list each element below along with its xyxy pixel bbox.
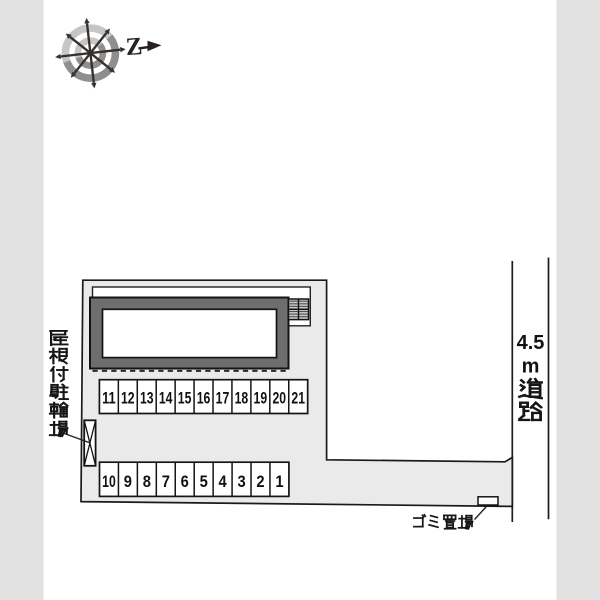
svg-text:18: 18 (235, 388, 249, 407)
svg-text:8: 8 (143, 472, 151, 491)
svg-text:17: 17 (216, 388, 230, 407)
svg-text:7: 7 (162, 472, 170, 491)
svg-text:11: 11 (102, 388, 116, 407)
svg-text:12: 12 (121, 388, 135, 407)
svg-text:4: 4 (219, 472, 228, 491)
svg-text:3: 3 (237, 472, 245, 491)
svg-text:19: 19 (254, 388, 268, 407)
svg-text:14: 14 (159, 388, 173, 407)
svg-text:1: 1 (275, 472, 283, 491)
svg-text:6: 6 (181, 472, 189, 491)
svg-text:5: 5 (200, 472, 208, 491)
svg-text:13: 13 (140, 388, 154, 407)
svg-text:20: 20 (272, 388, 286, 407)
svg-text:m: m (522, 356, 540, 378)
svg-text:15: 15 (178, 388, 192, 407)
svg-text:10: 10 (102, 472, 116, 491)
svg-text:4.5: 4.5 (517, 332, 545, 354)
svg-text:2: 2 (256, 472, 264, 491)
svg-text:16: 16 (197, 388, 211, 407)
svg-text:9: 9 (124, 472, 132, 491)
svg-text:21: 21 (291, 388, 305, 407)
